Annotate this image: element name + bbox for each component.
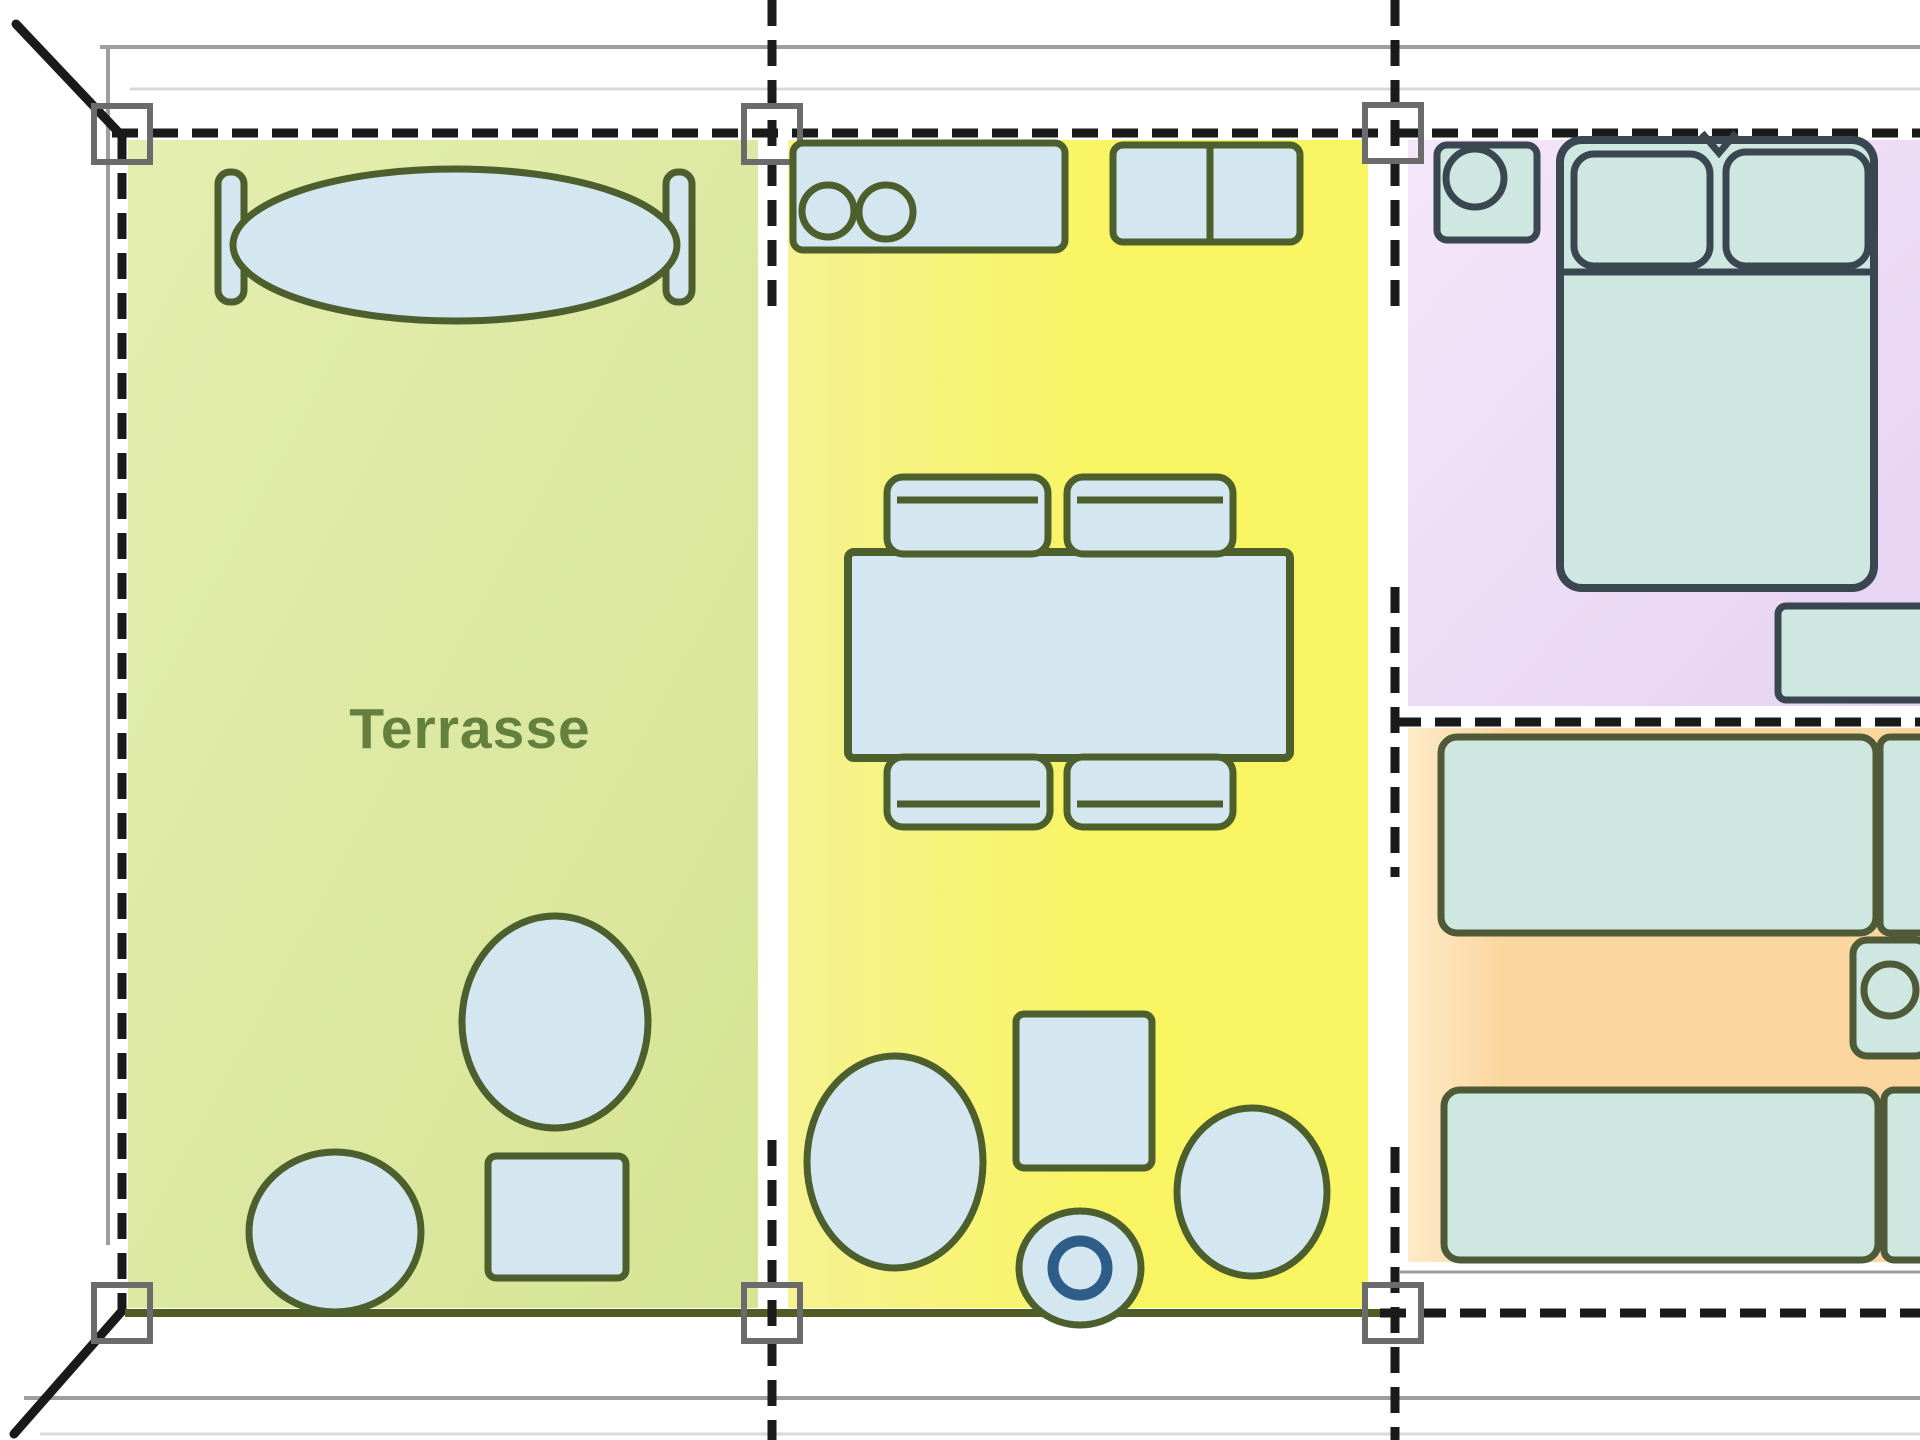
twin-bed-top-right-clipped [1880, 737, 1920, 933]
floor-plan-drawing: Terrasse [0, 0, 1920, 1440]
dining-chair-top-right [1067, 477, 1233, 554]
terrace-square-stool [488, 1156, 626, 1278]
terrace-label: Terrasse [349, 697, 590, 761]
twin-room-lamp [1864, 964, 1916, 1016]
dining-chair-bottom-left [887, 757, 1050, 827]
dining-chair-top-left [887, 477, 1048, 554]
double-bed-pillow-right [1726, 152, 1868, 266]
lounge-chair-left [807, 1056, 983, 1268]
sink-basin-right [859, 185, 913, 239]
guy-line-bottom-left [14, 1311, 122, 1434]
twin-bed-bottom-right-clipped [1884, 1090, 1920, 1260]
terrace-oval-table [233, 169, 677, 321]
dining-chair-bottom-right [1067, 757, 1233, 827]
floor-plan-canvas: Terrasse [0, 0, 1920, 1440]
lounge-stool [1019, 1211, 1141, 1325]
terrace-round-table [462, 916, 648, 1128]
twin-bed-bottom [1444, 1090, 1878, 1260]
lounge-chair-right [1177, 1108, 1327, 1276]
bedroom-shelf [1778, 606, 1920, 700]
sink-basin-left [802, 185, 854, 237]
terrace-round-chair [249, 1152, 421, 1312]
double-bed-pillow-left [1574, 154, 1710, 266]
bedroom-lamp [1446, 149, 1504, 207]
dining-table [848, 552, 1290, 758]
twin-bed-top [1441, 737, 1876, 933]
lounge-side-table [1016, 1014, 1152, 1168]
